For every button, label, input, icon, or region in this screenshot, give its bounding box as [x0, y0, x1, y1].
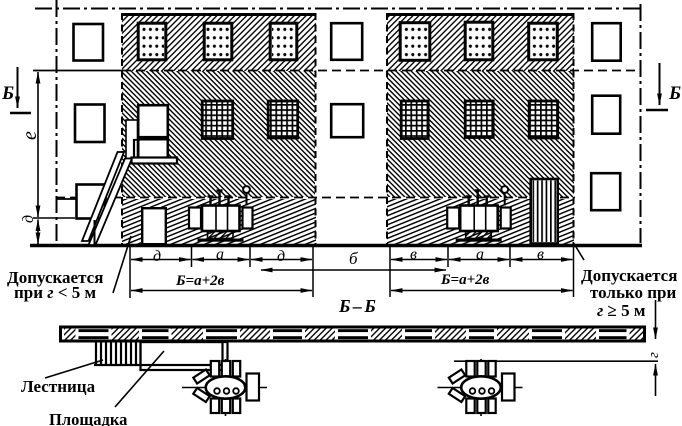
svg-text:Площадка: Площадка — [49, 410, 127, 426]
svg-text:в: в — [537, 246, 544, 263]
svg-text:Б=а+2в: Б=а+2в — [175, 273, 225, 289]
svg-text:е: е — [19, 131, 41, 140]
svg-text:а: а — [216, 246, 224, 263]
svg-text:д: д — [153, 248, 161, 265]
svg-text:г ≥ 5 м: г ≥ 5 м — [597, 301, 646, 320]
svg-text:при г < 5 м: при г < 5 м — [14, 283, 97, 302]
svg-text:г: г — [646, 352, 662, 358]
svg-text:в: в — [410, 246, 417, 263]
svg-text:Б=а+2в: Б=а+2в — [440, 272, 490, 288]
svg-text:только при: только при — [590, 283, 677, 302]
svg-text:а: а — [476, 246, 484, 263]
svg-text:д: д — [20, 215, 37, 223]
svg-text:Б: Б — [668, 83, 681, 104]
svg-text:б: б — [349, 249, 358, 268]
svg-text:д: д — [277, 248, 285, 265]
svg-text:Б: Б — [1, 83, 14, 104]
svg-text:Б–Б: Б–Б — [338, 296, 378, 316]
svg-text:Лестница: Лестница — [21, 377, 96, 396]
